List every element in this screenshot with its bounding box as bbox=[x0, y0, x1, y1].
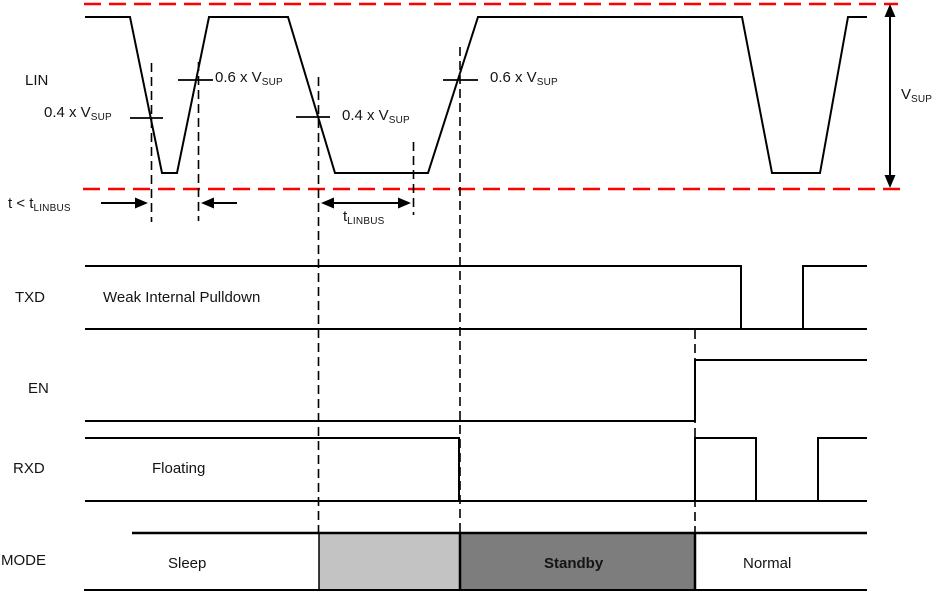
threshold-subscript: SUP bbox=[389, 115, 410, 126]
t-short-label: t < tLINBUS bbox=[8, 196, 71, 215]
mode-state-standby: Standby bbox=[544, 556, 603, 572]
threshold-value: 0.4 x V bbox=[44, 104, 91, 121]
arrow-head-right bbox=[398, 198, 411, 209]
vsup-span-arrow bbox=[885, 4, 896, 188]
arrow-head-left bbox=[201, 198, 214, 209]
en-signal-label: EN bbox=[28, 381, 49, 397]
mode-wake-transition-box bbox=[319, 534, 460, 590]
threshold-subscript: SUP bbox=[262, 77, 283, 88]
threshold-value: 0.6 x V bbox=[490, 69, 537, 86]
t-linbus-label: tLINBUS bbox=[343, 209, 385, 228]
vsup-value: V bbox=[901, 86, 911, 103]
threshold-tick-marks bbox=[130, 80, 478, 118]
threshold-subscript: SUP bbox=[91, 112, 112, 123]
en-waveform bbox=[85, 360, 867, 421]
threshold-04-label-second: 0.4 x VSUP bbox=[342, 108, 410, 127]
rxd-signal-label: RXD bbox=[13, 461, 45, 477]
timing-subscript: LINBUS bbox=[33, 203, 70, 214]
threshold-subscript: SUP bbox=[537, 77, 558, 88]
arrow-head-left bbox=[321, 198, 334, 209]
t-short-arrows bbox=[101, 198, 237, 209]
threshold-06-label-first: 0.6 x VSUP bbox=[215, 70, 283, 89]
txd-signal-label: TXD bbox=[15, 290, 45, 306]
threshold-value: 0.6 x V bbox=[215, 69, 262, 86]
mode-state-sleep: Sleep bbox=[168, 556, 206, 572]
lin-signal-label: LIN bbox=[25, 73, 48, 89]
timing-subscript: LINBUS bbox=[347, 216, 384, 227]
threshold-value: 0.4 x V bbox=[342, 107, 389, 124]
rxd-state-label: Floating bbox=[152, 461, 205, 477]
t-linbus-arrow bbox=[321, 198, 411, 209]
rxd-pulse-1 bbox=[695, 438, 756, 501]
arrow-head-right bbox=[135, 198, 148, 209]
timing-value: t < t bbox=[8, 195, 33, 212]
vsup-subscript: SUP bbox=[911, 94, 932, 105]
lin-waveform bbox=[85, 17, 867, 173]
lin-wakeup-timing-diagram: LIN 0.4 x VSUP 0.6 x VSUP 0.4 x VSUP 0.6… bbox=[0, 0, 936, 597]
arrow-head-up bbox=[885, 4, 896, 17]
vsup-label: VSUP bbox=[901, 87, 932, 106]
mode-state-normal: Normal bbox=[743, 556, 791, 572]
mode-signal-label: MODE bbox=[1, 553, 46, 569]
threshold-06-label-second: 0.6 x VSUP bbox=[490, 70, 558, 89]
rxd-pulse-2 bbox=[818, 438, 867, 501]
rxd-floating-upper-rail bbox=[85, 438, 459, 501]
txd-state-label: Weak Internal Pulldown bbox=[103, 290, 260, 306]
threshold-04-label-first: 0.4 x VSUP bbox=[44, 105, 112, 124]
arrow-head-down bbox=[885, 175, 896, 188]
